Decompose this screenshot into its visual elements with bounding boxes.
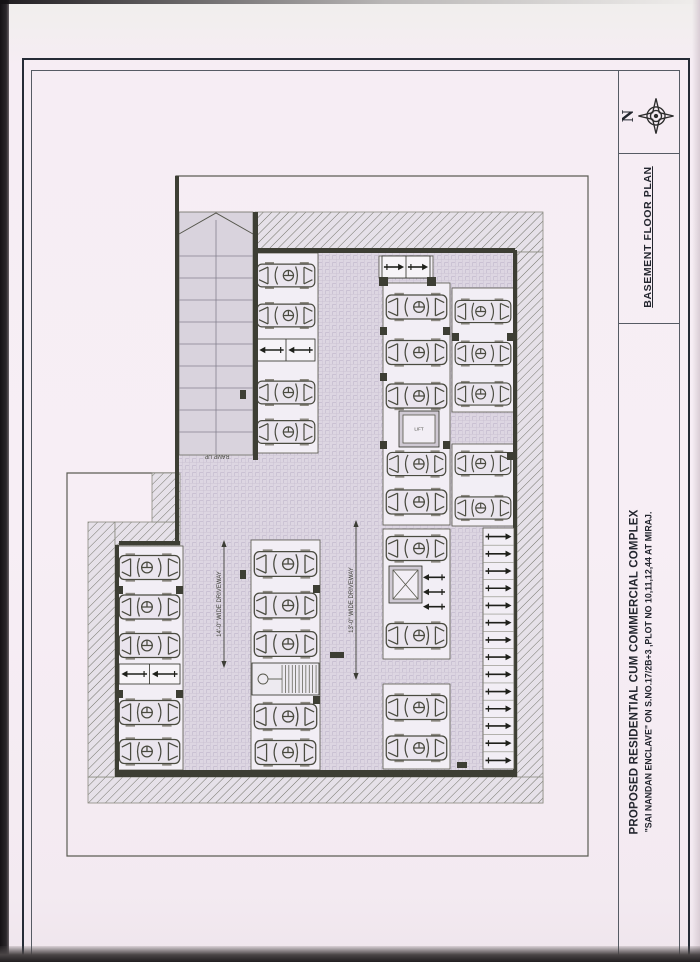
wall-hatch: [517, 252, 543, 803]
wall: [119, 541, 180, 545]
car-stall: [386, 338, 446, 366]
parking-bay: [254, 253, 318, 453]
car-icon: [254, 549, 316, 578]
parking-bay: [452, 288, 514, 412]
car-stall: [119, 698, 179, 726]
lift-label: LIFT: [414, 427, 424, 432]
direction-sign-stall: [257, 339, 315, 361]
car-icon: [119, 553, 179, 581]
parking-bay: [251, 540, 320, 770]
car-stall: [255, 738, 316, 766]
car-stall: [387, 450, 445, 477]
parking-bay: [383, 684, 450, 769]
car-icon: [386, 382, 446, 410]
car-icon: [257, 379, 315, 406]
car-icon: [254, 629, 316, 658]
car-icon: [455, 450, 511, 476]
wall: [115, 770, 517, 777]
car-icon: [386, 488, 446, 516]
car-stall: [386, 382, 446, 410]
column-stub: [313, 696, 320, 704]
car-stall: [257, 379, 315, 406]
column-stub: [380, 441, 387, 449]
car-stall: [257, 262, 315, 289]
floor-plan: RAMP UPLIFT14'-0" WIDE DRIVEWAY13'-0" WI…: [0, 0, 700, 962]
ramp: RAMP UP: [179, 212, 253, 459]
two-wheeler-bay: [483, 528, 514, 769]
car-stall: [254, 629, 316, 658]
photo-edge-bottom: [0, 946, 700, 962]
car-stall: [119, 737, 179, 765]
car-icon: [455, 381, 511, 407]
direction-sign-stall: [119, 664, 180, 684]
car-stall: [386, 693, 446, 721]
car-stall: [455, 340, 511, 366]
car-icon: [257, 302, 315, 329]
car-stall: [386, 734, 446, 762]
photo-edge-top: [0, 0, 700, 4]
column-stub: [240, 570, 246, 579]
car-icon: [386, 293, 446, 321]
car-stall: [254, 549, 316, 578]
photo-edge-right: [692, 0, 700, 962]
parking-bay: [452, 444, 514, 526]
car-icon: [386, 621, 446, 649]
wall: [175, 176, 179, 545]
car-icon: [119, 631, 179, 659]
car-stall: [455, 450, 511, 476]
car-stall: [254, 591, 316, 620]
car-icon: [119, 698, 179, 726]
column-stub: [457, 762, 467, 768]
car-icon: [119, 737, 179, 765]
car-stall: [455, 381, 511, 407]
lift-shaft: LIFT: [399, 411, 439, 447]
column-stub: [240, 390, 246, 399]
driveway-width-text: 13'-0" WIDE DRIVEWAY: [349, 567, 355, 633]
staircase: [252, 663, 319, 695]
car-icon: [119, 593, 179, 621]
car-stall: [257, 419, 315, 446]
direction-sign-stall: [382, 256, 430, 278]
parking-bay: [116, 546, 183, 770]
car-stall: [386, 488, 446, 516]
car-icon: [455, 495, 511, 521]
car-stall: [119, 593, 179, 621]
wall: [115, 545, 119, 770]
car-stall: [386, 621, 446, 649]
column-stub: [443, 327, 450, 335]
column-stub: [443, 441, 450, 449]
wall: [255, 248, 515, 253]
driveway-width-text: 14'-0" WIDE DRIVEWAY: [217, 571, 223, 637]
car-stall: [119, 553, 179, 581]
car-stall: [386, 534, 446, 562]
car-icon: [254, 702, 316, 731]
column-stub: [330, 652, 344, 658]
parking-bay: [383, 283, 450, 525]
ramp-up-label: RAMP UP: [204, 453, 229, 459]
car-icon: [386, 734, 446, 762]
column-stub: [452, 333, 459, 341]
car-stall: [119, 631, 179, 659]
car-stall: [455, 495, 511, 521]
column-stub: [176, 586, 183, 594]
column-stub: [313, 585, 320, 593]
driveway-paving: [179, 455, 253, 545]
paper-sheet: N BASEMENT FLOOR PLAN PROPOSED RESIDENTI…: [0, 0, 700, 962]
column-stub: [507, 452, 514, 460]
parking-bay: [379, 256, 433, 278]
column-stub: [379, 277, 388, 286]
wall-hatch: [255, 212, 543, 252]
car-icon: [386, 534, 446, 562]
column-stub: [176, 690, 183, 698]
car-icon: [257, 262, 315, 289]
wall-hatch: [88, 522, 115, 777]
car-stall: [455, 298, 511, 324]
duct-shaft: [389, 566, 422, 603]
car-icon: [255, 738, 316, 766]
car-icon: [455, 340, 511, 366]
car-icon: [386, 693, 446, 721]
car-stall: [254, 702, 316, 731]
car-stall: [386, 293, 446, 321]
column-stub: [116, 690, 123, 698]
car-icon: [257, 419, 315, 446]
column-stub: [507, 333, 514, 341]
wall-hatch: [88, 777, 543, 803]
column-stub: [427, 277, 436, 286]
photo-edge-left: [0, 0, 9, 962]
car-stall: [257, 302, 315, 329]
car-icon: [254, 591, 316, 620]
column-stub: [116, 586, 123, 594]
car-icon: [455, 298, 511, 324]
car-icon: [386, 338, 446, 366]
car-icon: [387, 450, 445, 477]
scanned-drawing-photo: { "title_block": { "north_label": "N", "…: [0, 0, 700, 962]
column-stub: [380, 373, 387, 381]
column-stub: [380, 327, 387, 335]
